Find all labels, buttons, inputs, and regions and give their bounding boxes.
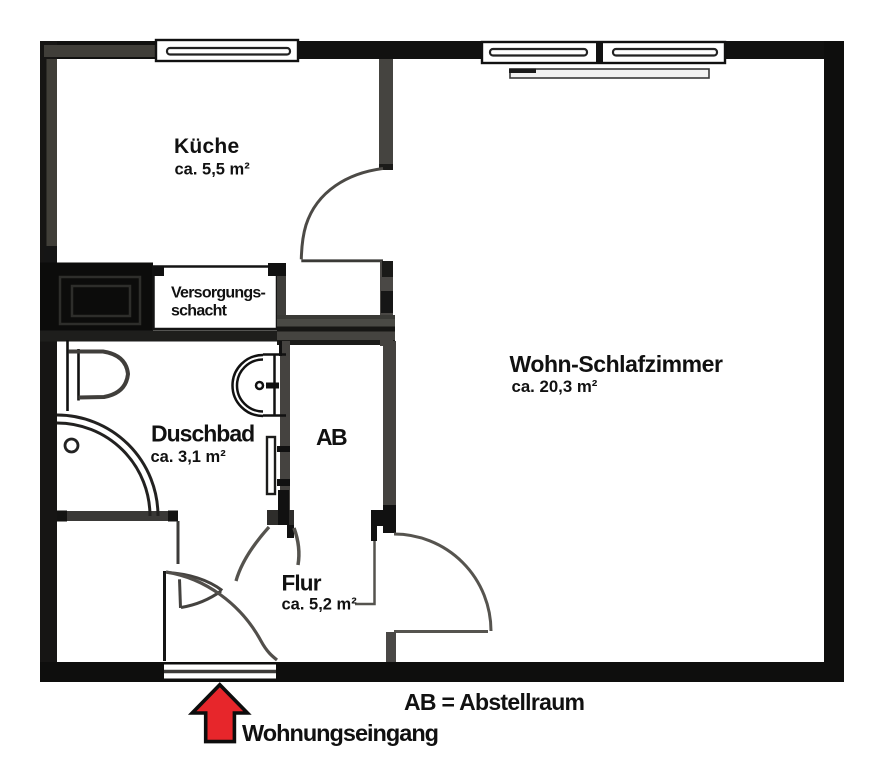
svg-text:Duschbad: Duschbad <box>151 421 254 447</box>
svg-text:Flur: Flur <box>282 571 322 596</box>
svg-text:AB: AB <box>316 424 347 450</box>
svg-text:ca. 3,1 m²: ca. 3,1 m² <box>151 448 227 466</box>
svg-text:ca. 5,2 m²: ca. 5,2 m² <box>282 596 358 614</box>
svg-text:schacht: schacht <box>171 303 228 320</box>
svg-text:Wohnungseingang: Wohnungseingang <box>242 720 438 746</box>
svg-text:AB = Abstellraum: AB = Abstellraum <box>404 689 585 715</box>
svg-text:Wohn-Schlafzimmer: Wohn-Schlafzimmer <box>510 351 724 377</box>
svg-text:Küche: Küche <box>174 135 239 158</box>
svg-text:ca. 20,3 m²: ca. 20,3 m² <box>512 377 598 396</box>
svg-text:ca. 5,5 m²: ca. 5,5 m² <box>175 161 251 179</box>
svg-text:Versorgungs-: Versorgungs- <box>171 285 266 302</box>
